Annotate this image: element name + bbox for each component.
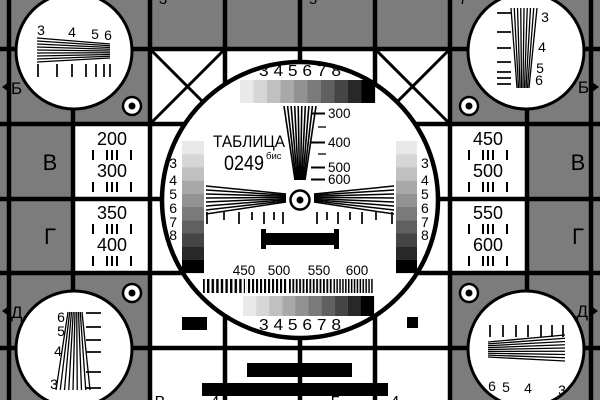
bottom-bar-long	[202, 383, 388, 396]
wedge-mark-label: 300	[328, 106, 351, 121]
wedge-number: 5	[57, 323, 65, 339]
card-title: ТАБЛИЦА	[213, 132, 286, 151]
top-fragment: 7	[459, 0, 467, 8]
wedge-number: 3	[50, 376, 58, 392]
ladder-number: 8	[169, 227, 177, 243]
row-letter-v-right: В	[571, 150, 586, 175]
corner-circle-top-left	[16, 0, 132, 109]
wedge-number: 6	[104, 27, 112, 43]
side-number: 600	[473, 235, 503, 255]
row-letter-b-left: Б	[11, 79, 22, 98]
wedge-number: 6	[488, 378, 496, 394]
card-number: 0249	[224, 152, 264, 175]
frequency-burst-strip	[203, 279, 373, 293]
bullseye-icon	[460, 284, 478, 302]
ladder-number: 3	[169, 155, 177, 171]
right-ladder-numbers: 3 4 5 6 7 8	[421, 155, 429, 243]
row-letter-v-left: В	[43, 150, 58, 175]
bullseye-icon	[291, 191, 310, 210]
row-letter-g-right: Г	[572, 224, 584, 249]
frequency-label: 600	[346, 263, 369, 278]
bullseye-icon	[123, 284, 141, 302]
row-letter-d-right: Д	[576, 302, 588, 321]
top-fragment: 3	[159, 0, 167, 8]
side-number: 450	[473, 129, 503, 149]
frequency-label: 450	[233, 263, 256, 278]
bottom-fragment: Г	[331, 394, 340, 400]
tv-test-card: 3 4 5 6 3 4 5 6 6 5 4 3 6 5 4 3 300 400 …	[0, 0, 600, 400]
wedge-number: 4	[54, 343, 62, 359]
wedge-number: 4	[538, 39, 546, 55]
wedge-number: 6	[535, 72, 543, 88]
side-number: 300	[97, 161, 127, 181]
bottom-fragment: 4	[391, 394, 400, 400]
wedge-number: 5	[91, 26, 99, 42]
row-letter-b-right: Б	[578, 78, 589, 97]
left-ladder-numbers: 3 4 5 6 7 8	[169, 155, 177, 243]
side-number: 500	[473, 161, 503, 181]
wedge-number: 3	[558, 382, 566, 398]
wedge-number: 4	[68, 24, 76, 40]
frequency-label: 550	[308, 263, 331, 278]
wedge-number: 3	[37, 22, 45, 38]
wedge-number: 5	[502, 379, 510, 395]
card-number-suffix: бис	[266, 151, 282, 162]
row-letter-d-left: Д	[11, 303, 23, 322]
side-number: 400	[97, 235, 127, 255]
bottom-bar-short	[247, 363, 352, 377]
bottom-grayscale-numbers: 3 4 5 6 7 8	[259, 317, 341, 334]
wedge-number: 3	[541, 9, 549, 25]
wedge-number: 4	[524, 380, 532, 396]
side-number: 550	[473, 203, 503, 223]
bullseye-icon	[123, 97, 141, 115]
ladder-number: 8	[421, 227, 429, 243]
wedge-mark-label: 400	[328, 135, 351, 150]
bottom-fragment: 4	[211, 394, 220, 400]
top-grayscale-numbers: 3 4 5 6 7 8	[259, 63, 341, 80]
top-fragment: 5	[309, 0, 317, 8]
side-number: 200	[97, 129, 127, 149]
test-card-canvas: 3 4 5 6 3 4 5 6 6 5 4 3 6 5 4 3 300 400 …	[0, 0, 600, 400]
bottom-fragment: В	[155, 394, 166, 400]
line-count-marks: 300 400 500 600	[328, 106, 351, 187]
bullseye-icon	[460, 97, 478, 115]
wedge-mark-label: 600	[328, 172, 351, 187]
side-number: 350	[97, 203, 127, 223]
frequency-label: 500	[268, 263, 291, 278]
row-letter-g-left: Г	[44, 224, 56, 249]
ladder-number: 3	[421, 155, 429, 171]
